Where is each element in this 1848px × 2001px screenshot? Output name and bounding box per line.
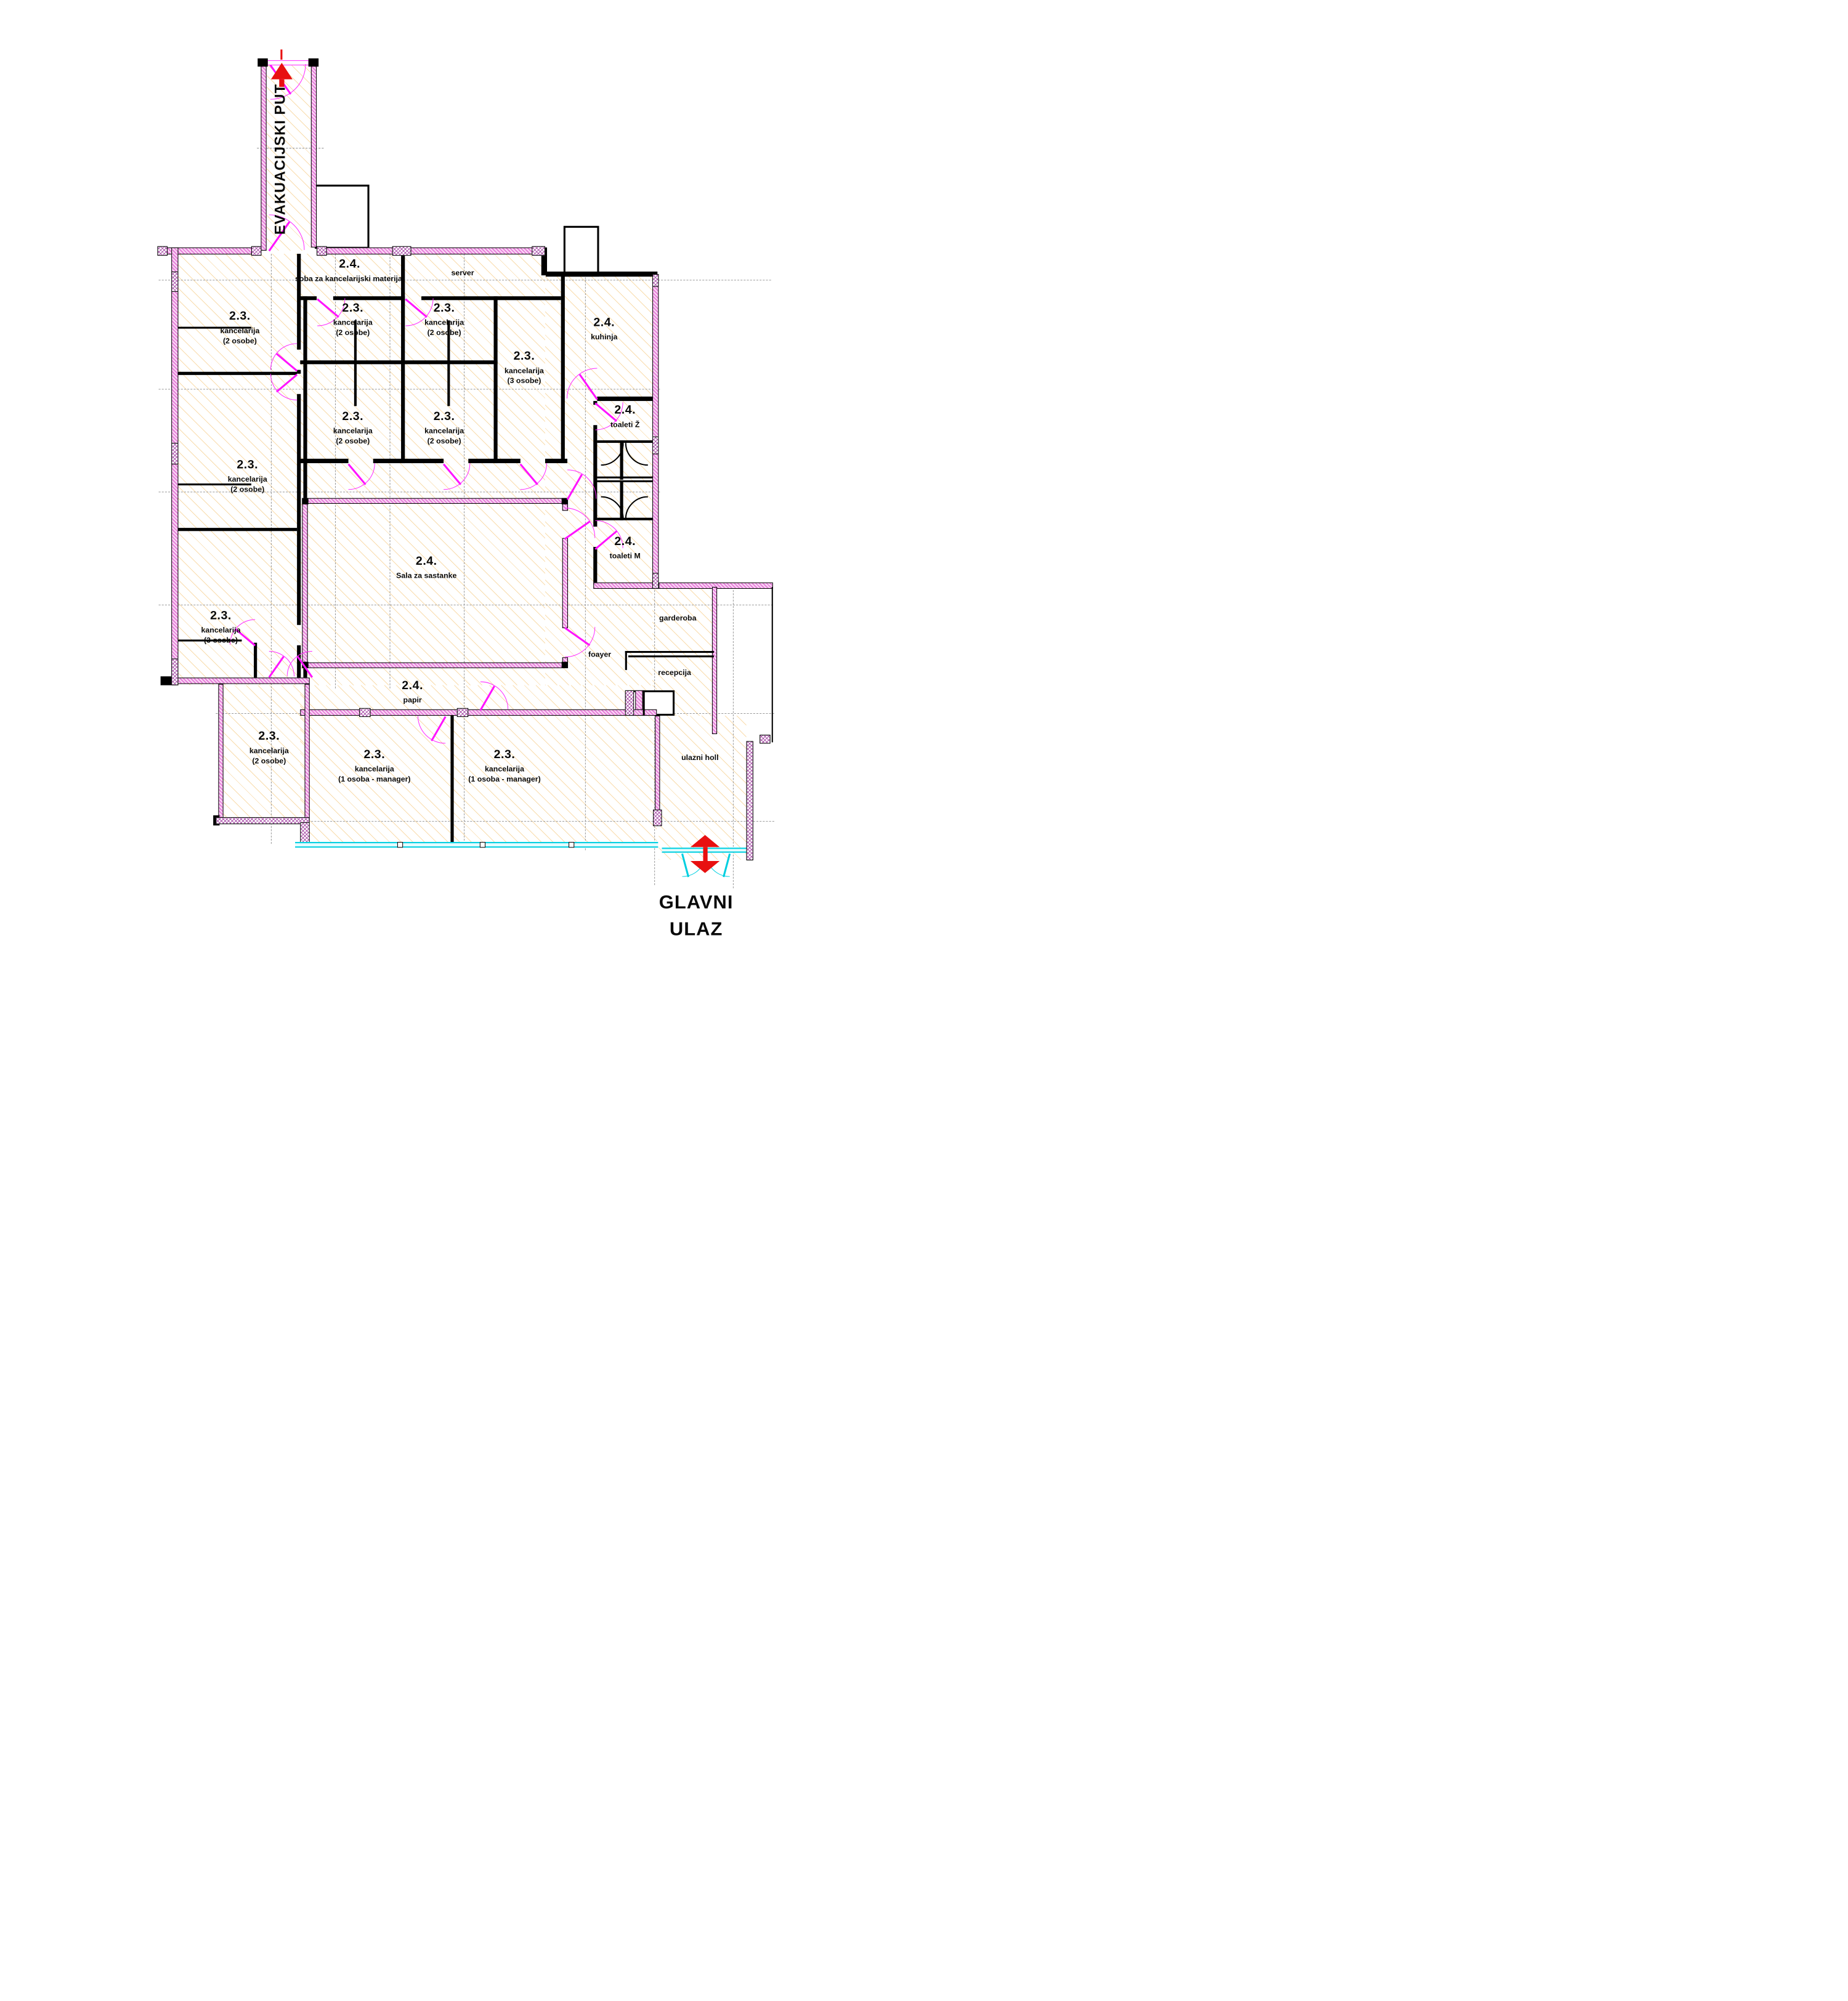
grid-axis — [733, 587, 734, 888]
evacuation-arrow-line — [280, 49, 282, 59]
entrance-arrow-up — [691, 835, 719, 847]
room-label-office-block-br: 2.3.kancelarija(2 osobe) — [394, 410, 495, 446]
wall — [297, 394, 301, 625]
wall-kuhinja-bottom — [597, 397, 652, 401]
grid-axis — [585, 274, 586, 850]
room-label-supplies: 2.4.soba za kancelarijski materijal — [283, 257, 416, 283]
main-entrance-line2: ULAZ — [642, 916, 750, 943]
wall-toilets-bottom — [593, 583, 659, 589]
exit-door-swing — [235, 28, 306, 99]
pier — [359, 708, 371, 717]
mullion — [569, 842, 574, 847]
wall-garderoba-right — [712, 587, 717, 734]
terrace-edge — [772, 587, 773, 742]
wall-meeting-left — [302, 498, 307, 668]
room-label-office-nw1: 2.3.kancelarija(2 osobe) — [189, 310, 291, 346]
pier — [171, 272, 178, 292]
pier — [532, 246, 545, 256]
grid-axis — [159, 605, 773, 605]
pier — [251, 246, 261, 256]
room-label-garderoba: garderoba — [627, 612, 729, 623]
grid-axis — [159, 280, 771, 280]
pier — [625, 690, 634, 716]
wall-block-bottom — [300, 459, 348, 463]
wall-corridor-left — [261, 60, 266, 251]
wall-managers-top — [300, 709, 657, 716]
floor-plan: EVAKUACIJSKI PUT — [0, 0, 924, 1000]
entrance-arrow-shaft — [703, 847, 707, 861]
shaft — [564, 226, 599, 277]
wall-sw-top — [162, 677, 310, 684]
pier — [171, 658, 178, 685]
room-label-office-block-tl: 2.3.kancelarija(2 osobe) — [302, 301, 403, 337]
pier — [653, 810, 662, 827]
pier — [652, 573, 659, 589]
room-label-toaleti-z: 2.4.toaleti Ž — [574, 403, 676, 429]
stall-wall — [597, 440, 653, 443]
wall-meeting-right — [562, 538, 568, 628]
wall-cap — [257, 59, 267, 67]
wall-stub — [254, 643, 257, 678]
wall-corner — [562, 661, 568, 668]
evacuation-arrow-head — [271, 63, 293, 79]
room-label-kuhinja: 2.4.kuhinja — [553, 316, 655, 341]
main-entrance-label: GLAVNI ULAZ — [642, 889, 750, 943]
reception-desk-divider — [643, 690, 645, 716]
wall-sw-bottom — [216, 817, 309, 824]
wall-block-mid — [300, 360, 497, 364]
stall-wall — [597, 480, 653, 482]
wall-block-top — [300, 296, 317, 300]
entrance-arrow-down — [691, 861, 719, 873]
wall-divider — [178, 528, 297, 531]
pier — [652, 274, 659, 287]
stairwell — [315, 185, 370, 249]
wall-block-top — [421, 296, 561, 300]
evacuation-route-label: EVAKUACIJSKI PUT — [272, 89, 292, 235]
room-label-manager-1: 2.3.kancelarija(1 osoba - manager) — [323, 748, 425, 784]
room-label-office-block-tr: 2.3.kancelarija(2 osobe) — [394, 301, 495, 337]
room-label-office-sw: 2.3.kancelarija(2 osobe) — [218, 730, 320, 766]
wall-meeting-top — [302, 498, 568, 504]
wall-top-right — [317, 248, 545, 254]
room-label-office-3p: 2.3.kancelarija(3 osobe) — [474, 350, 575, 386]
room-label-foayer: foayer — [549, 648, 650, 659]
storefront-glazing — [295, 842, 658, 847]
pier — [171, 443, 178, 464]
pier — [392, 246, 411, 256]
room-label-papir: 2.4.papir — [362, 679, 463, 704]
wall-corner — [302, 498, 308, 504]
pier — [652, 437, 659, 455]
pier — [317, 246, 326, 256]
wall-cap — [309, 59, 318, 67]
room-label-meeting: 2.4.Sala za sastanke — [376, 554, 477, 580]
room-label-toaleti-m: 2.4.toaleti M — [574, 535, 676, 560]
room-label-recepcija: recepcija — [624, 666, 726, 677]
room-label-office-w3: 2.3.kancelarija(3 osobe) — [170, 609, 272, 645]
wall-block-bottom — [468, 459, 520, 463]
wall-block-bottom — [373, 459, 444, 463]
room-label-server: server — [412, 267, 514, 278]
room-label-ulazni-holl: ulazni holl — [649, 751, 751, 762]
pier — [300, 822, 309, 844]
room-label-manager-2: 2.3.kancelarija(1 osoba - manager) — [454, 748, 556, 784]
mullion — [397, 842, 403, 847]
stall-wall — [597, 477, 653, 479]
floor-plan-canvas: EVAKUACIJSKI PUT — [0, 0, 924, 1000]
pier — [760, 735, 771, 743]
room-label-office-w2: 2.3.kancelarija(2 osobe) — [197, 458, 298, 494]
main-entrance-line1: GLAVNI — [642, 889, 750, 916]
wall-corridor-right — [311, 60, 317, 248]
room-label-office-block-bl: 2.3.kancelarija(2 osobe) — [302, 410, 403, 446]
wall — [297, 370, 301, 374]
mullion — [480, 842, 485, 847]
pier — [157, 246, 167, 256]
pier — [457, 708, 469, 717]
wall-entrance-left — [655, 716, 660, 811]
wall-meeting-bottom — [302, 663, 568, 668]
